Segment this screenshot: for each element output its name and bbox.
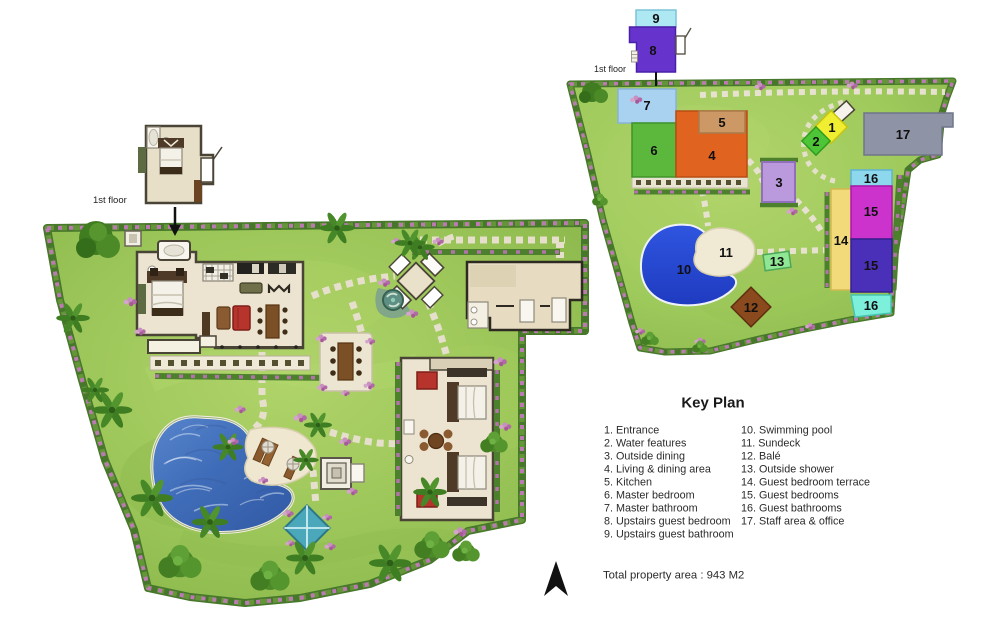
svg-text:1st floor: 1st floor (594, 64, 626, 74)
svg-text:13: 13 (770, 254, 784, 269)
svg-text:11. Sundeck: 11. Sundeck (741, 438, 801, 450)
svg-text:16: 16 (864, 298, 878, 313)
svg-text:16: 16 (864, 171, 878, 186)
svg-text:5. Kitchen: 5. Kitchen (604, 477, 652, 489)
svg-text:17: 17 (896, 127, 910, 142)
svg-text:13. Outside shower: 13. Outside shower (741, 464, 834, 476)
svg-text:10. Swimming pool: 10. Swimming pool (741, 425, 832, 437)
svg-text:7. Master bathroom: 7. Master bathroom (604, 503, 698, 515)
svg-text:9: 9 (652, 11, 659, 26)
svg-text:4. Living & dining area: 4. Living & dining area (604, 464, 711, 476)
svg-text:15: 15 (864, 258, 878, 273)
svg-text:12. Balé: 12. Balé (741, 451, 781, 463)
svg-text:1: 1 (828, 120, 835, 135)
svg-text:14. Guest bedroom terrace: 14. Guest bedroom terrace (741, 477, 870, 489)
svg-text:16. Guest bathrooms: 16. Guest bathrooms (741, 503, 842, 515)
svg-text:8: 8 (649, 43, 656, 58)
svg-text:1st floor: 1st floor (93, 195, 127, 206)
svg-text:8. Upstairs guest bedroom: 8. Upstairs guest bedroom (604, 516, 731, 528)
svg-text:5: 5 (718, 115, 725, 130)
svg-text:Key Plan: Key Plan (681, 395, 744, 412)
svg-text:14: 14 (834, 233, 849, 248)
svg-text:10: 10 (677, 262, 691, 277)
svg-text:2: 2 (812, 134, 819, 149)
svg-text:6. Master bedroom: 6. Master bedroom (604, 490, 695, 502)
svg-text:6: 6 (650, 143, 657, 158)
svg-text:Total property area : 943 M2: Total property area : 943 M2 (603, 570, 744, 582)
svg-text:15. Guest bedrooms: 15. Guest bedrooms (741, 490, 839, 502)
svg-text:7: 7 (643, 98, 650, 113)
svg-text:15: 15 (864, 204, 878, 219)
svg-text:1. Entrance: 1. Entrance (604, 425, 659, 437)
svg-text:3: 3 (775, 175, 782, 190)
svg-text:2. Water features: 2. Water features (604, 438, 687, 450)
svg-text:11: 11 (719, 245, 733, 260)
svg-text:12: 12 (744, 300, 758, 315)
svg-text:9. Upstairs guest bathroom: 9. Upstairs guest bathroom (604, 529, 734, 541)
svg-text:4: 4 (708, 148, 716, 163)
svg-text:17. Staff area & office: 17. Staff area & office (741, 516, 844, 528)
svg-text:3. Outside dining: 3. Outside dining (604, 451, 685, 463)
